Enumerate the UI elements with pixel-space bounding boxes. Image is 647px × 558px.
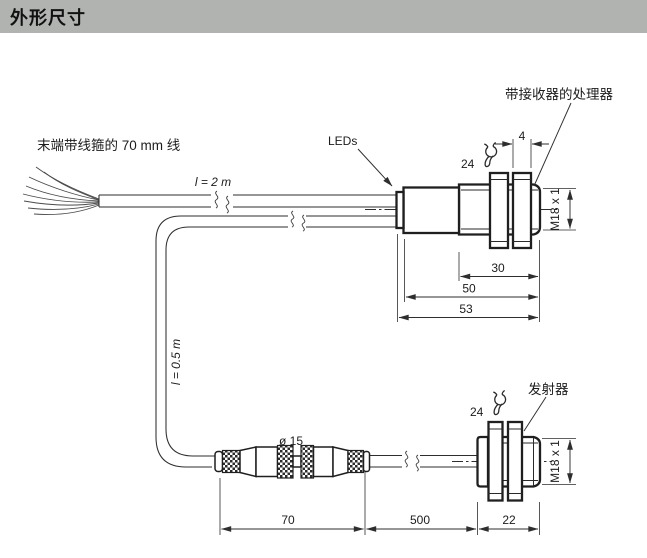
svg-text:4: 4 — [519, 129, 526, 143]
wrench-icon — [482, 143, 499, 167]
hex-nut-1 — [489, 422, 503, 501]
leds-arrow — [358, 149, 392, 186]
wrench-icon — [491, 391, 508, 415]
knurled-ring-right — [301, 446, 314, 479]
connector-pair — [215, 446, 370, 479]
dim-500: 500 — [410, 513, 430, 527]
svg-text:24: 24 — [461, 157, 475, 171]
connector-grip-right — [348, 451, 364, 473]
loose-wires — [23, 167, 99, 215]
dim-50: 50 — [462, 282, 476, 296]
emitter-label: 发射器 — [528, 382, 569, 397]
wire-note-label: 末端带线箍的 70 mm 线 — [37, 137, 180, 153]
leds-label: LEDs — [328, 134, 357, 148]
connector-grip-left — [223, 451, 241, 473]
cable-2m-label: l = 2 m — [195, 175, 231, 189]
dim-thread-top: M18 x 1 — [543, 188, 576, 231]
hex-nut-2 — [513, 173, 531, 248]
receiver-leader — [534, 103, 571, 186]
knurled-ring-left — [278, 446, 294, 479]
svg-text:M18 x 1: M18 x 1 — [548, 188, 562, 231]
dimension-diagram: 末端带线箍的 70 mm 线 l = 2 m LEDs 带接收器的处理器 4 2… — [0, 0, 647, 558]
wrench-size-top: 24 — [461, 143, 499, 171]
wrench-size-bottom: 24 — [470, 391, 508, 419]
cable-05m — [156, 211, 396, 467]
svg-text:M18 x 1: M18 x 1 — [548, 440, 562, 483]
connector-cap-left — [215, 452, 223, 472]
receiver-sensor — [397, 173, 541, 248]
hex-nut-2 — [508, 422, 522, 501]
emitter-leader — [524, 397, 546, 431]
cable-2m — [99, 191, 396, 213]
connector-diameter-label: ø 15 — [279, 434, 303, 448]
coupling-stem — [293, 456, 301, 467]
connector-cap-right — [364, 452, 370, 472]
emitter-sensor — [478, 422, 541, 501]
dim-thread-bottom: M18 x 1 — [542, 439, 576, 485]
dim-nut-width: 4 — [495, 129, 549, 168]
dim-70: 70 — [281, 513, 295, 527]
cable-05m-label: l = 0.5 m — [169, 339, 183, 385]
receiver-label: 带接收器的处理器 — [505, 86, 613, 102]
datasheet-page: 外形尺寸 — [0, 0, 647, 558]
dim-30: 30 — [491, 261, 505, 275]
hex-nut-1 — [490, 173, 508, 248]
dim-22: 22 — [502, 513, 516, 527]
dim-53: 53 — [459, 302, 473, 316]
svg-text:24: 24 — [470, 405, 484, 419]
